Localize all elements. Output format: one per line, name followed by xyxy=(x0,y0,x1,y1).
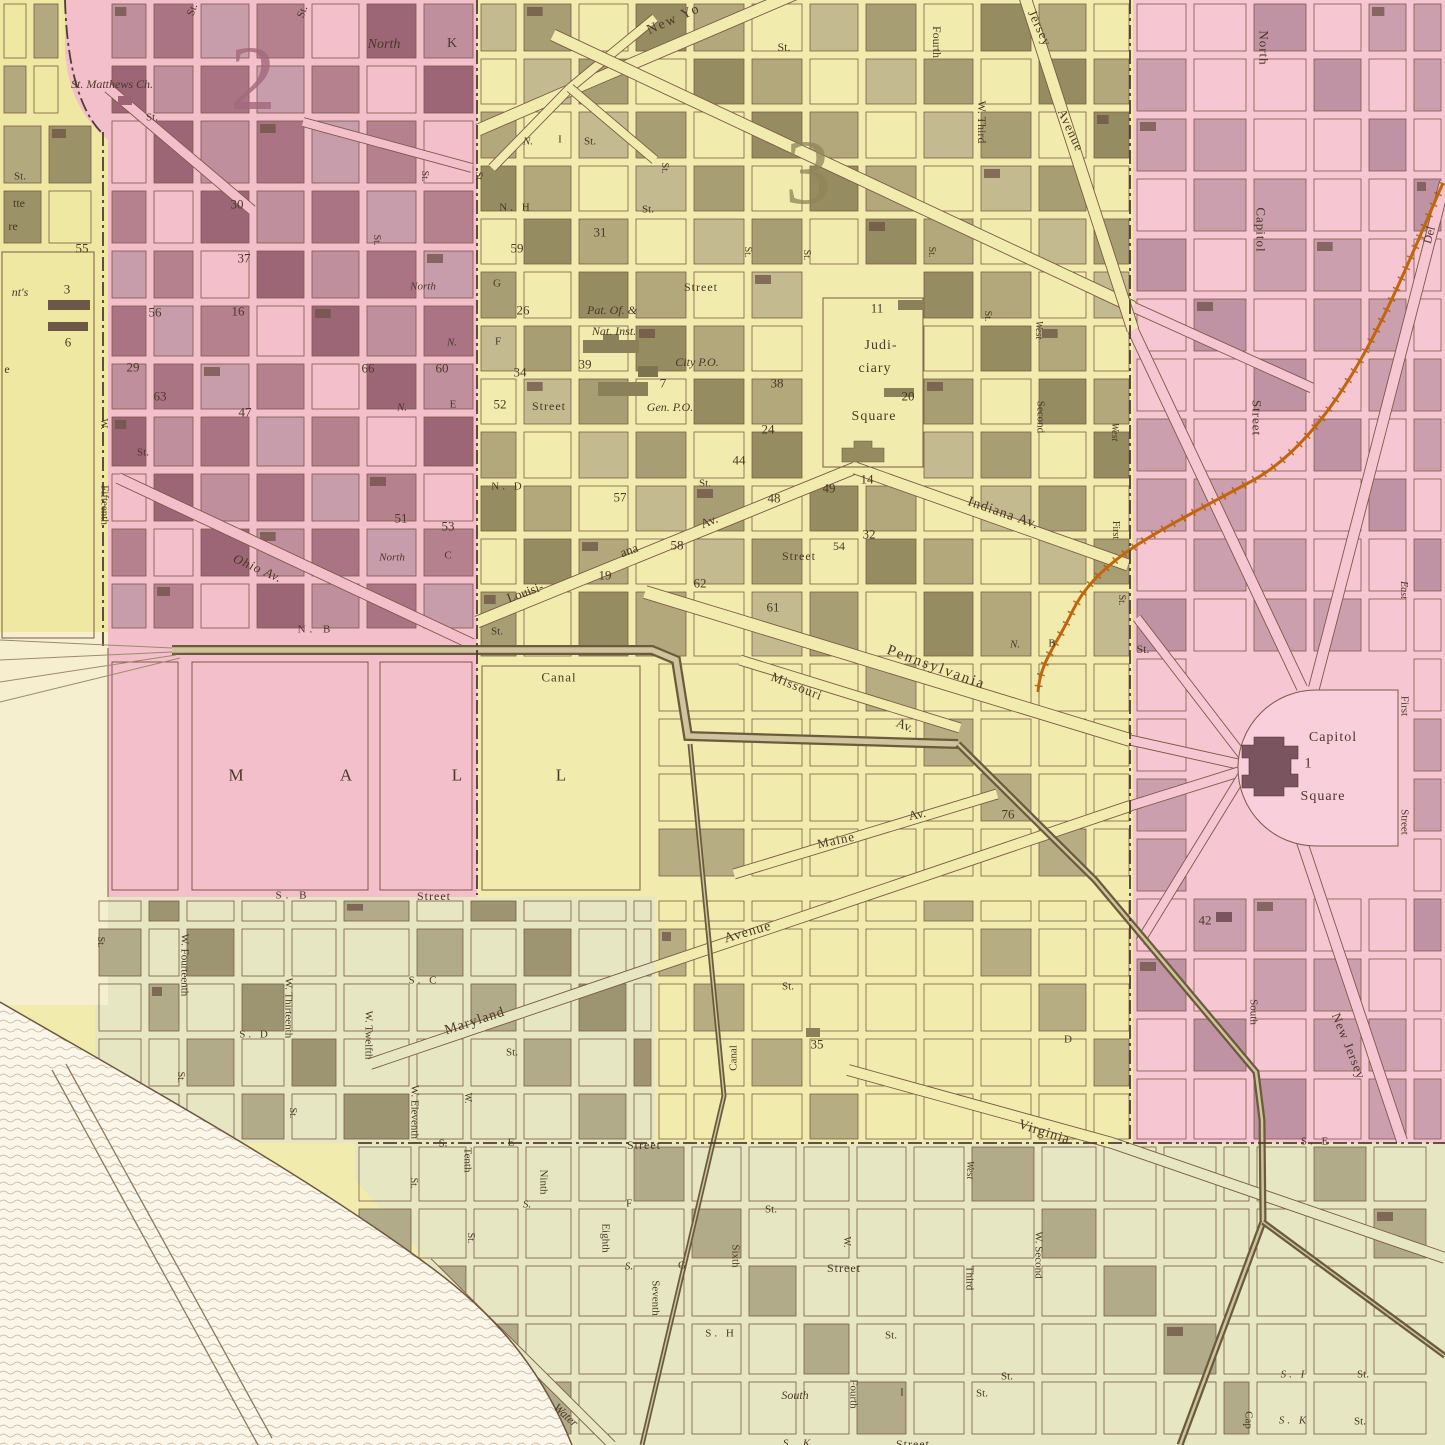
map-label-s: S. xyxy=(523,1200,531,1211)
map-label-st: St. xyxy=(175,1072,185,1083)
map-label-street: Street xyxy=(1251,400,1264,436)
map-label-2: 2 xyxy=(230,32,276,124)
map-label-indiana-av: Indiana Av. xyxy=(966,495,1041,532)
map-label-i: I xyxy=(558,135,562,146)
map-label-west: West xyxy=(1033,321,1043,340)
map-label-f: F xyxy=(495,337,501,348)
map-label-st: St. xyxy=(408,1178,418,1189)
map-label-w-third: W. Third xyxy=(976,101,988,144)
map-label-fourth: Fourth xyxy=(848,1379,859,1408)
map-label-st: St. xyxy=(699,479,711,490)
map-label-51: 51 xyxy=(395,512,408,525)
map-label-47: 47 xyxy=(239,406,252,419)
map-label-1: 1 xyxy=(1304,757,1312,772)
map-label-s: S. xyxy=(625,1262,633,1273)
map-label-44: 44 xyxy=(733,454,746,467)
map-label-new-jersey: New Jersey xyxy=(1330,1011,1368,1081)
map-label-st: St. xyxy=(1354,1417,1366,1428)
map-label-k: K xyxy=(447,37,457,51)
map-label-jersey: Jersey xyxy=(1026,8,1054,48)
map-label-nat-inst: Nat. Inst. xyxy=(592,325,636,337)
map-label-76: 76 xyxy=(1002,808,1015,821)
map-label-e: e xyxy=(4,363,9,375)
map-label-s-c: S. C xyxy=(409,976,440,987)
map-label-n: N. xyxy=(447,338,457,349)
map-label-street: Street xyxy=(896,1438,930,1445)
map-label-maine: Maine xyxy=(816,830,856,851)
map-label-s-e: S. E xyxy=(1301,1137,1331,1148)
map-label-59: 59 xyxy=(511,242,524,255)
map-label-st: St. xyxy=(419,171,429,182)
map-label-louisi: Louisi- xyxy=(505,579,545,604)
map-label-gen-p-o: Gen. P.O. xyxy=(647,401,693,413)
map-label-n-h: N. H xyxy=(499,203,532,214)
map-label-missouri: Missouri xyxy=(769,670,824,702)
map-label-31: 31 xyxy=(594,226,607,239)
map-label-st: St. xyxy=(1136,643,1149,655)
map-label-capitol: Capitol xyxy=(1309,731,1357,745)
map-label-n: N. xyxy=(397,403,407,414)
map-label-a: A xyxy=(340,767,352,784)
map-label-street: Street xyxy=(684,281,718,293)
map-label-60: 60 xyxy=(436,362,449,375)
map-label-e: E xyxy=(450,400,457,411)
map-label-st: St. xyxy=(765,1205,777,1216)
map-label-st: St. xyxy=(777,41,790,53)
map-label-20: 20 xyxy=(902,390,915,403)
map-label-w-fourteenth: W. Fourteenth xyxy=(179,934,190,997)
map-label-n-b: N. B xyxy=(298,625,335,636)
map-label-34: 34 xyxy=(514,366,527,379)
map-label-north: North xyxy=(1258,30,1271,65)
map-label-38: 38 xyxy=(771,377,784,390)
map-label-third: Third xyxy=(964,1266,975,1290)
map-label-canal: Canal xyxy=(729,1045,740,1071)
map-label-del: Del xyxy=(1421,225,1437,245)
map-label-b: B xyxy=(1048,639,1055,650)
map-label-st: St. xyxy=(146,113,158,124)
map-label-st: St. xyxy=(137,448,149,459)
map-label-street: Street xyxy=(627,1139,661,1151)
map-label-s-b: S. B xyxy=(276,891,311,902)
map-label-tte: tte xyxy=(13,197,25,209)
map-label-st: St. xyxy=(287,1108,297,1119)
map-label-st: St. xyxy=(186,3,200,18)
map-label-g: G xyxy=(678,1261,686,1272)
map-label-37: 37 xyxy=(238,252,251,265)
map-label-av: Av. xyxy=(895,716,916,735)
map-label-second: Second xyxy=(1035,401,1046,433)
map-label-54: 54 xyxy=(833,540,845,552)
map-label-61: 61 xyxy=(767,601,780,614)
map-label-street: Street xyxy=(532,400,566,412)
map-label-ana: ana xyxy=(618,541,639,559)
map-label-tenth: Tenth xyxy=(462,1148,473,1173)
map-label-c: C xyxy=(444,551,451,562)
map-label-av: Av. xyxy=(699,512,720,531)
map-labels-layer: 23St.St.NorthKSt. Matthews Ch.St.New YoS… xyxy=(0,0,1445,1445)
map-label-east: East xyxy=(1398,581,1408,599)
map-label-st: St. xyxy=(473,172,483,183)
map-label-56: 56 xyxy=(149,306,162,319)
map-label-49: 49 xyxy=(823,482,836,495)
map-label-35: 35 xyxy=(811,1038,824,1051)
map-label-fourth: Fourth xyxy=(931,26,943,58)
map-label-avenue: Avenue xyxy=(1056,107,1087,154)
map-label-virginia: Virginia xyxy=(1016,1118,1071,1148)
map-label-south: South xyxy=(781,1389,808,1401)
map-label-street: Street xyxy=(782,550,816,562)
map-label-city-p-o: City P.O. xyxy=(675,356,718,368)
map-label-cap: Cap xyxy=(1243,1411,1254,1429)
map-label-eighth: Eighth xyxy=(600,1223,611,1252)
map-label-street: Street xyxy=(417,890,451,902)
map-label-first: First xyxy=(1399,696,1410,716)
map-label-11: 11 xyxy=(871,302,884,315)
antique-city-map: 23St.St.NorthKSt. Matthews Ch.St.New YoS… xyxy=(0,0,1445,1445)
map-label-re: re xyxy=(8,220,17,232)
map-label-canal: Canal xyxy=(541,671,576,684)
map-label-st: St. xyxy=(976,1389,988,1400)
map-label-st: St. xyxy=(982,311,992,322)
map-label-north: North xyxy=(368,38,401,52)
map-label-58: 58 xyxy=(671,539,684,552)
map-label-l: L xyxy=(556,767,566,784)
map-label-w-second: W. Second xyxy=(1033,1231,1044,1278)
map-label-st: St. xyxy=(926,247,936,258)
map-label-st: St. xyxy=(371,235,381,246)
map-label-w: W. xyxy=(98,418,108,429)
map-label-i: I xyxy=(900,1388,904,1399)
map-label-st: St. xyxy=(1116,595,1126,606)
map-label-s-i: S. I xyxy=(1281,1370,1308,1381)
map-label-st: St. xyxy=(296,5,310,20)
map-label-st: St. xyxy=(742,247,752,258)
map-label-m: M xyxy=(228,767,243,784)
map-label-24: 24 xyxy=(762,423,775,436)
map-label-north: North xyxy=(379,553,405,564)
map-label-seventh: Seventh xyxy=(650,1280,661,1315)
map-label-new-yo: New Yo xyxy=(645,2,703,38)
map-label-39: 39 xyxy=(579,358,592,371)
map-label-l: L xyxy=(452,767,462,784)
map-label-st: St. xyxy=(642,205,654,216)
map-label-water: Water xyxy=(551,1401,580,1429)
map-label-n: N. xyxy=(523,137,533,148)
map-label-pat-of: Pat. Of. & xyxy=(587,304,637,316)
map-label-26: 26 xyxy=(517,304,530,317)
map-label-av: Av. xyxy=(907,806,927,822)
map-label-st: St. xyxy=(465,1233,475,1244)
map-label-avenue: Avenue xyxy=(723,920,773,947)
map-label-29: 29 xyxy=(127,361,140,374)
map-label-32: 32 xyxy=(863,528,876,541)
map-label-s: S. xyxy=(439,1139,448,1150)
map-label-w-twelfth: W. Twelfth xyxy=(363,1011,374,1060)
map-label-63: 63 xyxy=(154,390,167,403)
map-label-66: 66 xyxy=(362,362,375,375)
map-label-first: First xyxy=(1110,521,1120,539)
map-label-16: 16 xyxy=(232,305,245,318)
map-label-57: 57 xyxy=(614,491,627,504)
map-label-st: St. xyxy=(491,627,503,638)
map-label-north: North xyxy=(410,282,436,293)
map-label-62: 62 xyxy=(694,577,707,590)
map-label-3: 3 xyxy=(64,283,71,296)
map-label-w: W. xyxy=(841,1236,851,1247)
map-label-30: 30 xyxy=(231,198,244,211)
map-label-53: 53 xyxy=(442,520,455,533)
map-label-55: 55 xyxy=(76,242,89,255)
map-label-52: 52 xyxy=(494,398,507,411)
map-label-st: St. xyxy=(14,172,26,183)
map-label-st: St. xyxy=(506,1048,518,1059)
map-label-f: F xyxy=(626,1199,632,1210)
map-label-sixth: Sixth xyxy=(730,1244,741,1267)
map-label-st: St. xyxy=(1001,1372,1013,1383)
map-label-6: 6 xyxy=(65,336,72,349)
map-label-ohio-av: Ohio Av. xyxy=(231,551,284,584)
map-label-pennsylvania: Pennsylvania xyxy=(885,643,988,693)
map-label-n: N. xyxy=(1010,640,1020,651)
map-label-st-matthews-ch: St. Matthews Ch. xyxy=(71,78,153,90)
map-label-s-h: S. H xyxy=(705,1329,737,1340)
map-label-capitol: Capitol xyxy=(1255,207,1268,252)
map-label-west: West xyxy=(964,1161,974,1180)
map-label-nt-s: nt's xyxy=(12,286,29,298)
map-label-s-k: S. K xyxy=(1279,1416,1309,1427)
map-label-st: St. xyxy=(584,137,596,148)
map-label-42: 42 xyxy=(1199,914,1212,927)
map-label-s-d: S. D xyxy=(239,1030,271,1041)
map-label-e: E xyxy=(508,1138,515,1149)
map-label-s-k: S. K xyxy=(783,1439,813,1445)
map-label-ninth: Ninth xyxy=(538,1169,549,1194)
map-label-maryland: Maryland xyxy=(443,1006,507,1039)
map-label-g: G xyxy=(493,279,501,290)
map-label-fifteenth: Fifteenth xyxy=(99,485,110,525)
map-label-st: St. xyxy=(782,982,794,993)
map-label-19: 19 xyxy=(599,569,612,582)
map-label-w-eleventh: W. Eleventh xyxy=(409,1085,420,1139)
map-label-st: St. xyxy=(1357,1370,1369,1381)
map-label-14: 14 xyxy=(861,473,874,486)
map-label-3: 3 xyxy=(785,126,831,218)
map-label-ciary: ciary xyxy=(859,362,892,376)
map-label-judi: Judi- xyxy=(865,339,898,353)
map-label-d: D xyxy=(1064,1035,1072,1046)
map-label-street: Street xyxy=(1399,809,1410,835)
map-label-st: St. xyxy=(659,163,669,174)
map-label-w: W. xyxy=(462,1092,472,1103)
map-label-st: St. xyxy=(95,937,105,948)
map-label-st: St. xyxy=(801,250,811,261)
map-label-7: 7 xyxy=(660,377,667,390)
map-label-south: South xyxy=(1248,999,1259,1025)
map-label-st: St. xyxy=(885,1331,897,1342)
map-label-square: Square xyxy=(852,410,897,424)
map-label-square: Square xyxy=(1301,790,1346,804)
map-label-w-thirteenth: W. Thirteenth xyxy=(283,978,294,1039)
map-label-n-d: N. D xyxy=(491,482,524,493)
map-label-street: Street xyxy=(827,1262,861,1274)
map-label-48: 48 xyxy=(768,492,781,505)
map-label-west: West xyxy=(1109,423,1119,442)
